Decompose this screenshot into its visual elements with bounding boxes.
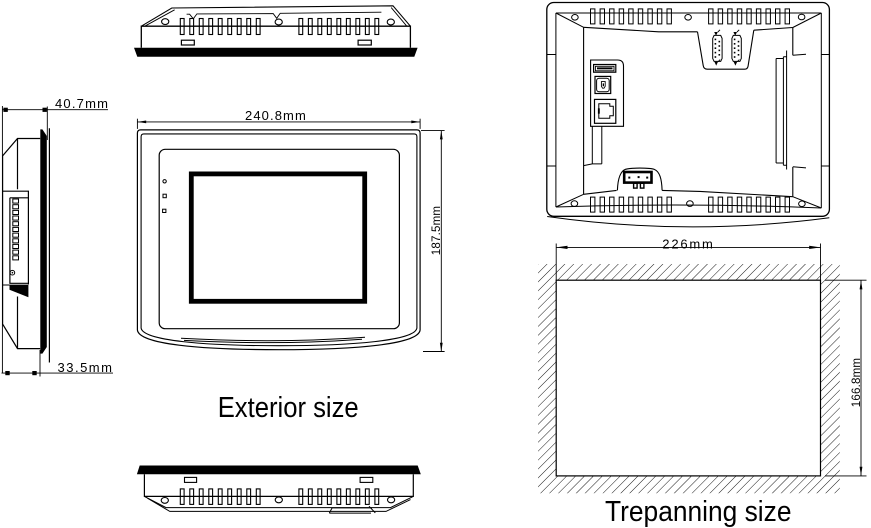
svg-text:240.8mm: 240.8mm [245,108,307,123]
svg-text:166.8mm: 166.8mm [851,358,863,407]
svg-text:226mm: 226mm [662,236,714,251]
svg-text:Exterior size: Exterior size [218,392,359,424]
svg-text:Trepanning size: Trepanning size [605,496,792,528]
svg-text:33.5mm: 33.5mm [58,360,114,375]
svg-text:40.7mm: 40.7mm [55,96,109,111]
svg-text:187.5mm: 187.5mm [431,206,443,255]
